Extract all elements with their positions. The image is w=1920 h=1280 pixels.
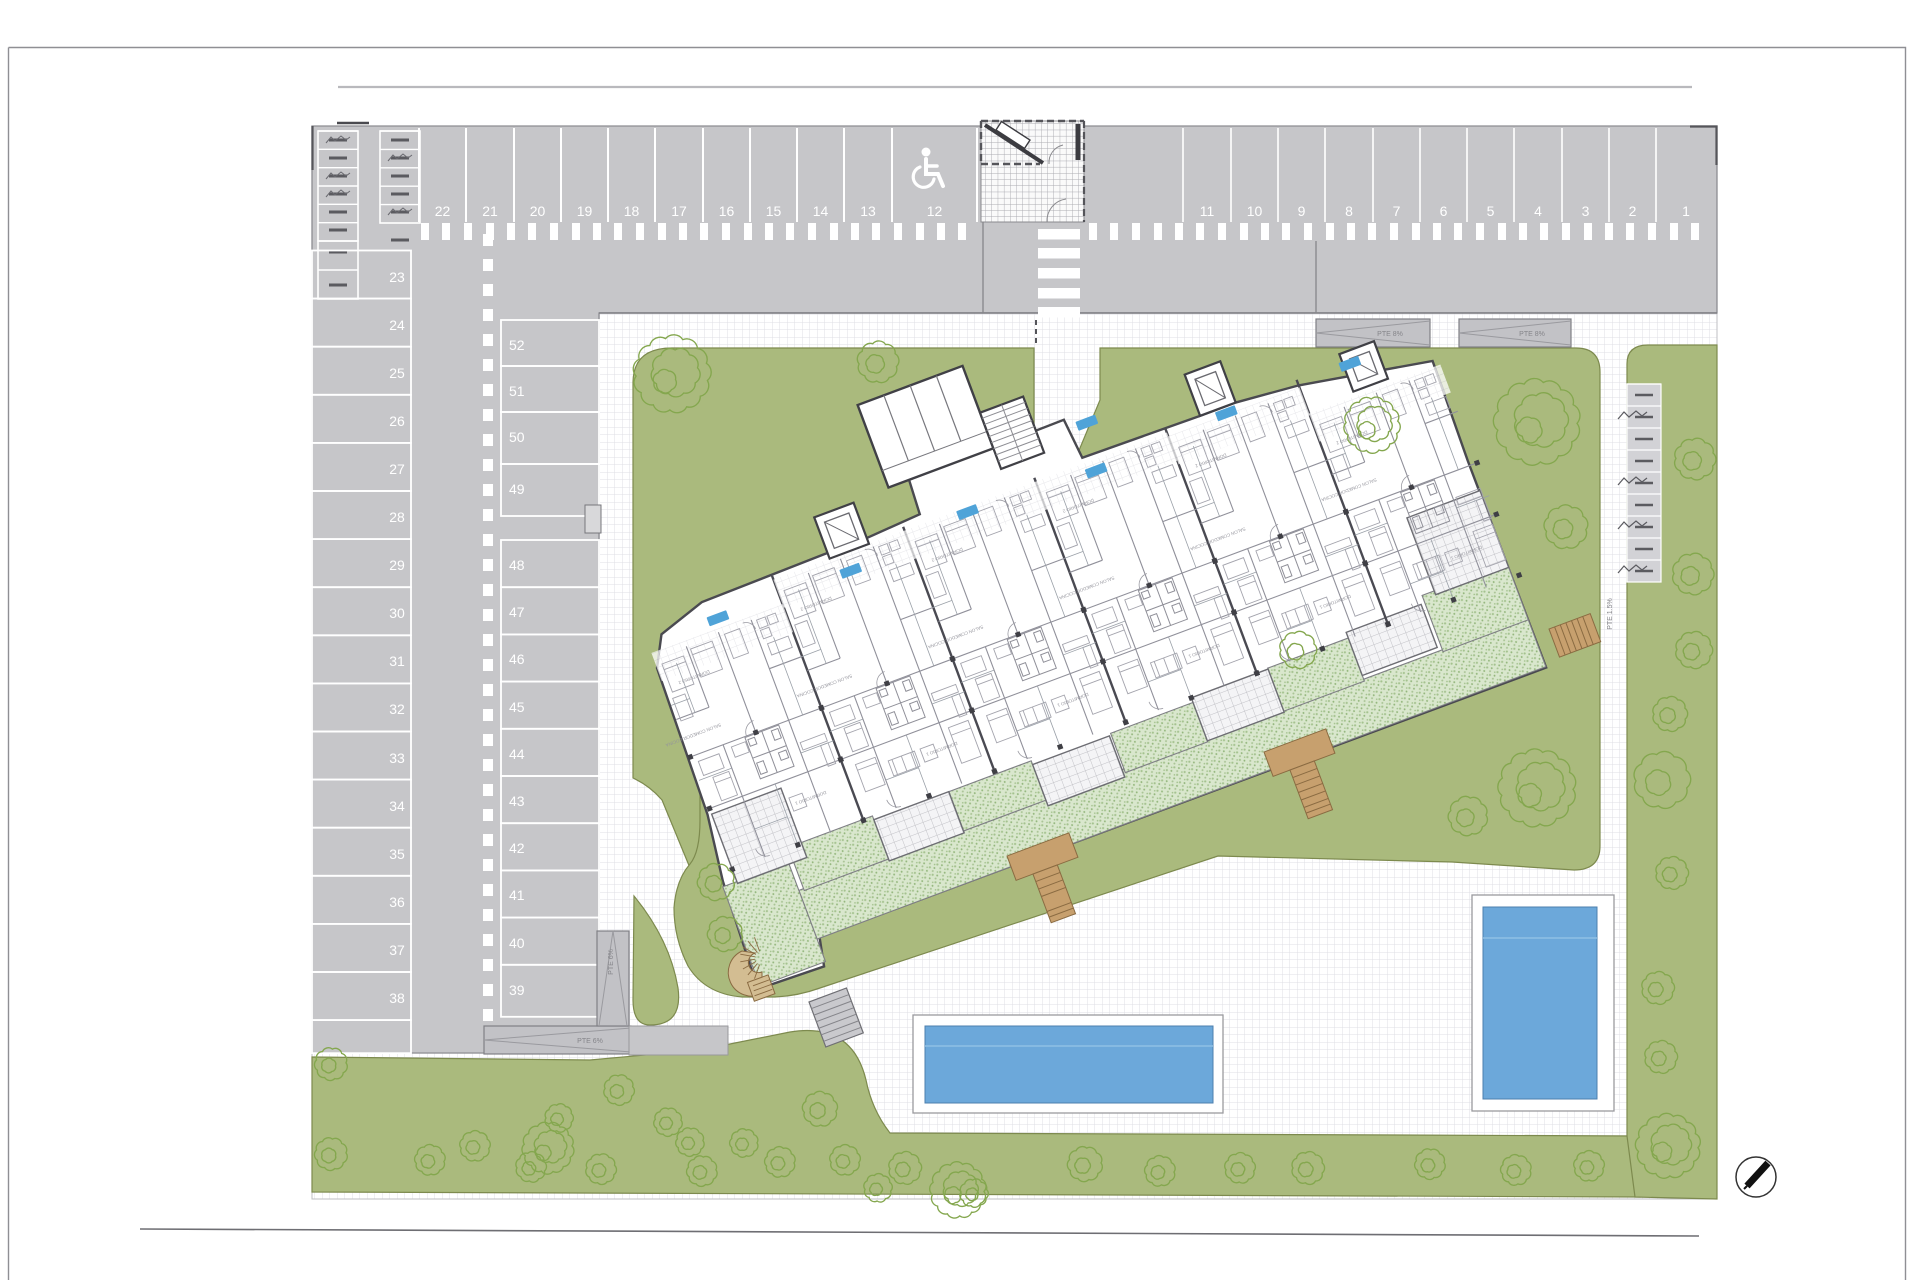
svg-text:52: 52 xyxy=(509,337,525,353)
svg-text:38: 38 xyxy=(389,990,405,1006)
svg-text:PTE 8%: PTE 8% xyxy=(1519,331,1545,338)
svg-text:37: 37 xyxy=(389,942,405,958)
svg-text:7: 7 xyxy=(1393,203,1401,219)
svg-text:9: 9 xyxy=(1298,203,1306,219)
svg-text:49: 49 xyxy=(509,481,525,497)
svg-text:PTE 8%: PTE 8% xyxy=(1377,331,1403,338)
svg-text:36: 36 xyxy=(389,894,405,910)
svg-text:50: 50 xyxy=(509,429,525,445)
svg-text:2: 2 xyxy=(1629,203,1637,219)
svg-text:40: 40 xyxy=(509,935,525,951)
svg-text:23: 23 xyxy=(389,269,405,285)
svg-text:42: 42 xyxy=(509,840,525,856)
svg-text:14: 14 xyxy=(813,203,829,219)
svg-text:33: 33 xyxy=(389,750,405,766)
svg-text:11: 11 xyxy=(1200,203,1215,219)
svg-text:15: 15 xyxy=(766,203,782,219)
svg-text:32: 32 xyxy=(389,701,405,717)
svg-text:22: 22 xyxy=(435,203,451,219)
svg-text:29: 29 xyxy=(389,557,405,573)
svg-text:13: 13 xyxy=(860,203,876,219)
svg-text:24: 24 xyxy=(389,317,405,333)
svg-text:3: 3 xyxy=(1582,203,1590,219)
svg-text:8: 8 xyxy=(1345,203,1353,219)
svg-text:39: 39 xyxy=(509,982,525,998)
svg-text:21: 21 xyxy=(482,203,498,219)
svg-text:PTE 6%: PTE 6% xyxy=(577,1038,603,1045)
svg-text:27: 27 xyxy=(389,461,405,477)
svg-text:1: 1 xyxy=(1682,203,1690,219)
svg-text:PTE 6%: PTE 6% xyxy=(608,949,615,975)
svg-text:26: 26 xyxy=(389,413,405,429)
svg-text:25: 25 xyxy=(389,365,405,381)
svg-text:47: 47 xyxy=(509,604,525,620)
svg-text:10: 10 xyxy=(1247,203,1263,219)
svg-text:34: 34 xyxy=(389,798,405,814)
svg-text:17: 17 xyxy=(671,203,687,219)
svg-text:41: 41 xyxy=(509,887,525,903)
svg-text:4: 4 xyxy=(1534,203,1542,219)
svg-text:28: 28 xyxy=(389,509,405,525)
svg-text:51: 51 xyxy=(509,383,525,399)
svg-text:35: 35 xyxy=(389,846,405,862)
svg-text:12: 12 xyxy=(927,203,943,219)
svg-text:19: 19 xyxy=(577,203,593,219)
svg-text:20: 20 xyxy=(530,203,546,219)
svg-text:6: 6 xyxy=(1440,203,1448,219)
svg-text:30: 30 xyxy=(389,605,405,621)
svg-text:18: 18 xyxy=(624,203,640,219)
svg-text:48: 48 xyxy=(509,557,525,573)
svg-text:43: 43 xyxy=(509,793,525,809)
svg-text:PTE 1.5%: PTE 1.5% xyxy=(1607,598,1614,630)
svg-text:16: 16 xyxy=(719,203,735,219)
svg-text:44: 44 xyxy=(509,746,525,762)
svg-text:46: 46 xyxy=(509,651,525,667)
svg-text:45: 45 xyxy=(509,699,525,715)
svg-text:5: 5 xyxy=(1487,203,1495,219)
svg-text:31: 31 xyxy=(389,653,405,669)
